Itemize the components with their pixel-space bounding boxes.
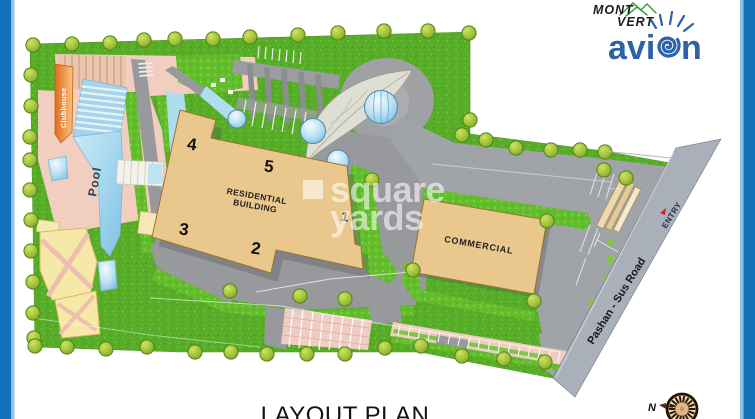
svg-text:avi: avi xyxy=(608,29,655,67)
svg-text:LAYOUT PLAN: LAYOUT PLAN xyxy=(261,402,430,419)
svg-text:n: n xyxy=(681,29,702,67)
svg-text:VERT: VERT xyxy=(617,15,654,29)
svg-text:Clubhouse: Clubhouse xyxy=(61,87,68,128)
svg-text:yards: yards xyxy=(330,197,424,238)
svg-text:N: N xyxy=(648,402,657,414)
